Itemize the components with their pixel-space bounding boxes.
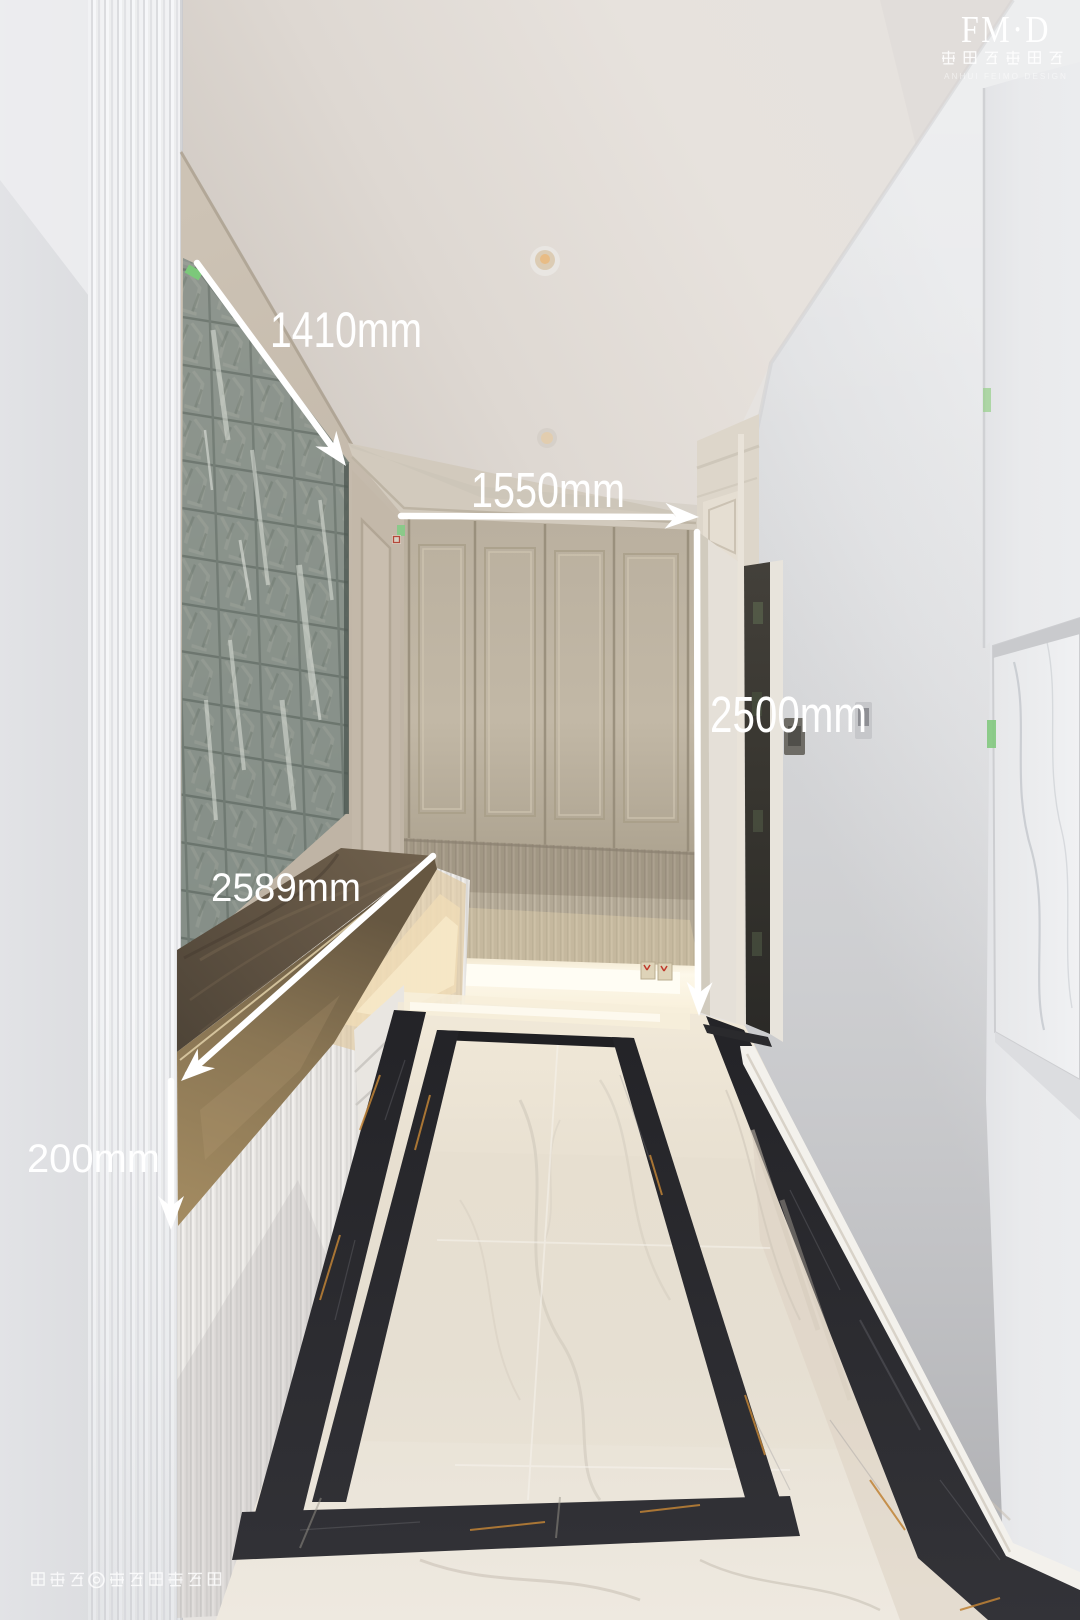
svg-text:2500mm: 2500mm [710, 686, 867, 743]
svg-text:2589mm: 2589mm [211, 866, 361, 910]
svg-text:1550mm: 1550mm [471, 464, 625, 518]
svg-text:ANHUI FEIMO DESIGN: ANHUI FEIMO DESIGN [944, 72, 1068, 81]
svg-text:200mm: 200mm [27, 1137, 160, 1181]
svg-text:1410mm: 1410mm [270, 302, 422, 358]
svg-text:FM·D: FM·D [961, 9, 1051, 51]
